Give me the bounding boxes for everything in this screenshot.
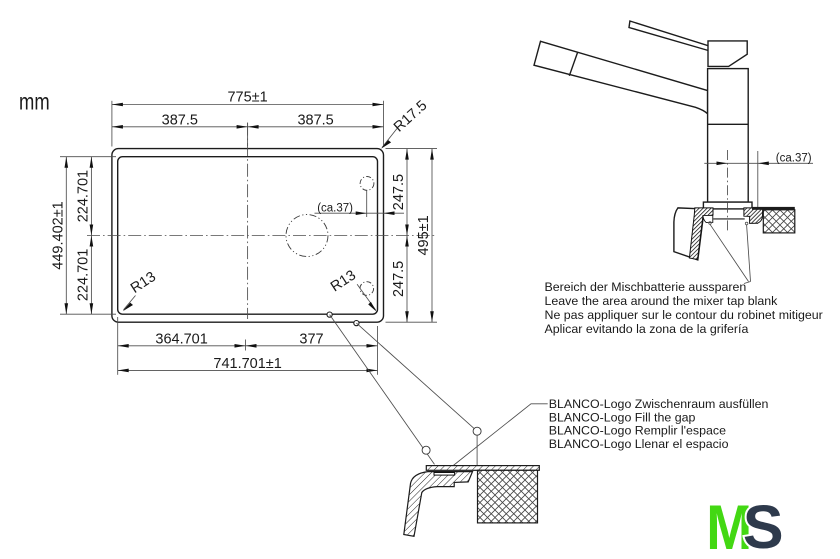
svg-text:BLANCO-Logo Remplir l'espace: BLANCO-Logo Remplir l'espace xyxy=(549,424,726,438)
svg-text:364.701: 364.701 xyxy=(155,332,207,348)
svg-text:(ca.37): (ca.37) xyxy=(317,202,353,214)
svg-text:387.5: 387.5 xyxy=(297,112,333,128)
svg-text:Aplicar evitando la zona de la: Aplicar evitando la zona de la grifería xyxy=(545,322,749,336)
svg-text:247.5: 247.5 xyxy=(391,261,407,297)
svg-text:BLANCO-Logo Llenar el espacio: BLANCO-Logo Llenar el espacio xyxy=(549,437,729,451)
svg-text:741.701±1: 741.701±1 xyxy=(213,356,281,372)
svg-text:Leave the area around the mixe: Leave the area around the mixer tap blan… xyxy=(545,294,779,308)
svg-text:Ne pas appliquer sur le contou: Ne pas appliquer sur le contour du robin… xyxy=(545,308,823,322)
svg-text:BLANCO-Logo Fill the gap: BLANCO-Logo Fill the gap xyxy=(549,410,696,424)
svg-text:377: 377 xyxy=(299,332,323,348)
svg-text:775±1: 775±1 xyxy=(227,90,267,106)
svg-text:S: S xyxy=(743,493,784,559)
svg-text:(ca.37): (ca.37) xyxy=(776,152,812,164)
svg-text:Bereich der Mischbatterie auss: Bereich der Mischbatterie aussparen xyxy=(545,280,747,294)
svg-text:mm: mm xyxy=(19,90,50,115)
svg-text:224.701: 224.701 xyxy=(76,170,92,222)
svg-text:387.5: 387.5 xyxy=(162,112,198,128)
svg-text:495±1: 495±1 xyxy=(416,215,432,255)
svg-text:449.402±1: 449.402±1 xyxy=(51,201,67,269)
svg-text:224.701: 224.701 xyxy=(76,249,92,301)
svg-text:BLANCO-Logo Zwischenraum ausfü: BLANCO-Logo Zwischenraum ausfüllen xyxy=(549,397,769,411)
svg-text:247.5: 247.5 xyxy=(391,174,407,210)
